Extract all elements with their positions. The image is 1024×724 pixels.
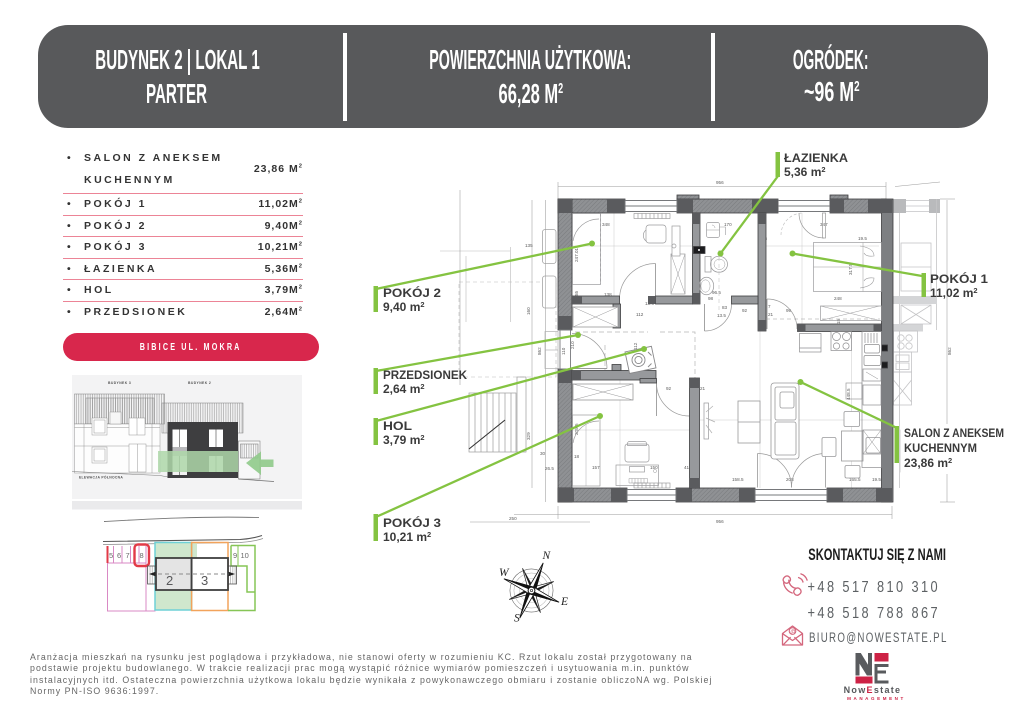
svg-text:7: 7	[768, 304, 771, 309]
svg-text:POKÓJ 2: POKÓJ 2	[383, 285, 441, 300]
svg-text:19.5: 19.5	[872, 477, 881, 482]
svg-text:7: 7	[126, 551, 130, 560]
svg-text:KUCHENNYM: KUCHENNYM	[904, 441, 977, 455]
svg-text:98: 98	[708, 296, 714, 301]
svg-text:15: 15	[836, 318, 841, 324]
svg-text:13.5: 13.5	[717, 313, 726, 318]
svg-text:112: 112	[636, 312, 644, 317]
svg-text:862: 862	[537, 347, 542, 355]
svg-text:92: 92	[666, 386, 672, 391]
svg-text:8: 8	[140, 551, 144, 560]
svg-text:329: 329	[526, 432, 531, 440]
svg-text:BUDYNEK 2: BUDYNEK 2	[188, 381, 211, 385]
svg-text:92: 92	[742, 308, 748, 313]
svg-text:41: 41	[684, 465, 690, 470]
svg-text:55: 55	[574, 290, 579, 296]
svg-text:348: 348	[602, 222, 610, 227]
svg-text:S: S	[514, 613, 520, 625]
svg-text:2,64 m2: 2,64 m2	[383, 382, 425, 396]
svg-text:23,86 m2: 23,86 m2	[904, 456, 952, 470]
svg-text:10: 10	[241, 551, 249, 560]
svg-text:21: 21	[768, 312, 774, 317]
svg-text:247.01: 247.01	[574, 248, 579, 262]
svg-text:10,21 m2: 10,21 m2	[383, 530, 431, 544]
svg-text:3,79 m2: 3,79 m2	[383, 433, 425, 447]
svg-text:5,36 m2: 5,36 m2	[784, 165, 826, 179]
svg-text:ELEWACJA PÓŁNOCNA: ELEWACJA PÓŁNOCNA	[79, 475, 123, 480]
svg-text:HOL: HOL	[383, 419, 412, 433]
svg-text:347: 347	[820, 222, 828, 227]
svg-text:248: 248	[834, 296, 842, 301]
svg-text:170: 170	[724, 222, 732, 227]
svg-text:26.5: 26.5	[545, 466, 554, 471]
svg-text:250: 250	[509, 516, 517, 521]
svg-text:135: 135	[525, 243, 533, 248]
svg-text:3: 3	[201, 573, 208, 588]
svg-text:11,02 m2: 11,02 m2	[930, 286, 978, 300]
svg-text:N: N	[542, 550, 552, 562]
svg-text:E: E	[560, 596, 568, 608]
svg-text:9: 9	[233, 551, 237, 560]
svg-text:862: 862	[947, 347, 952, 355]
svg-text:18: 18	[574, 454, 580, 459]
svg-text:5: 5	[109, 551, 113, 560]
svg-text:160: 160	[526, 307, 531, 315]
svg-text:158.5: 158.5	[732, 477, 744, 482]
svg-text:112: 112	[633, 342, 638, 350]
svg-text:POKÓJ 3: POKÓJ 3	[383, 515, 441, 530]
svg-text:448.5: 448.5	[846, 388, 851, 400]
svg-text:9,40 m2: 9,40 m2	[383, 300, 425, 314]
svg-text:83: 83	[722, 305, 728, 310]
svg-text:W: W	[499, 567, 510, 579]
svg-text:150: 150	[650, 465, 658, 470]
svg-text:ŁAZIENKA: ŁAZIENKA	[784, 151, 848, 165]
svg-text:157: 157	[592, 465, 600, 470]
svg-text:6: 6	[117, 551, 121, 560]
svg-text:96.5: 96.5	[712, 290, 721, 295]
svg-text:2: 2	[166, 573, 173, 588]
svg-text:110: 110	[561, 347, 566, 355]
svg-text:19.5: 19.5	[858, 236, 867, 241]
svg-text:21: 21	[700, 386, 706, 391]
svg-text:956: 956	[716, 519, 724, 524]
svg-text:POKÓJ 1: POKÓJ 1	[930, 271, 988, 286]
svg-text:PRZEDSIONEK: PRZEDSIONEK	[383, 368, 467, 382]
svg-text:956: 956	[716, 180, 724, 185]
svg-text:BUDYNEK 3: BUDYNEK 3	[108, 381, 131, 385]
svg-text:SALON Z ANEKSEM: SALON Z ANEKSEM	[904, 426, 1004, 440]
svg-text:30: 30	[540, 451, 546, 456]
